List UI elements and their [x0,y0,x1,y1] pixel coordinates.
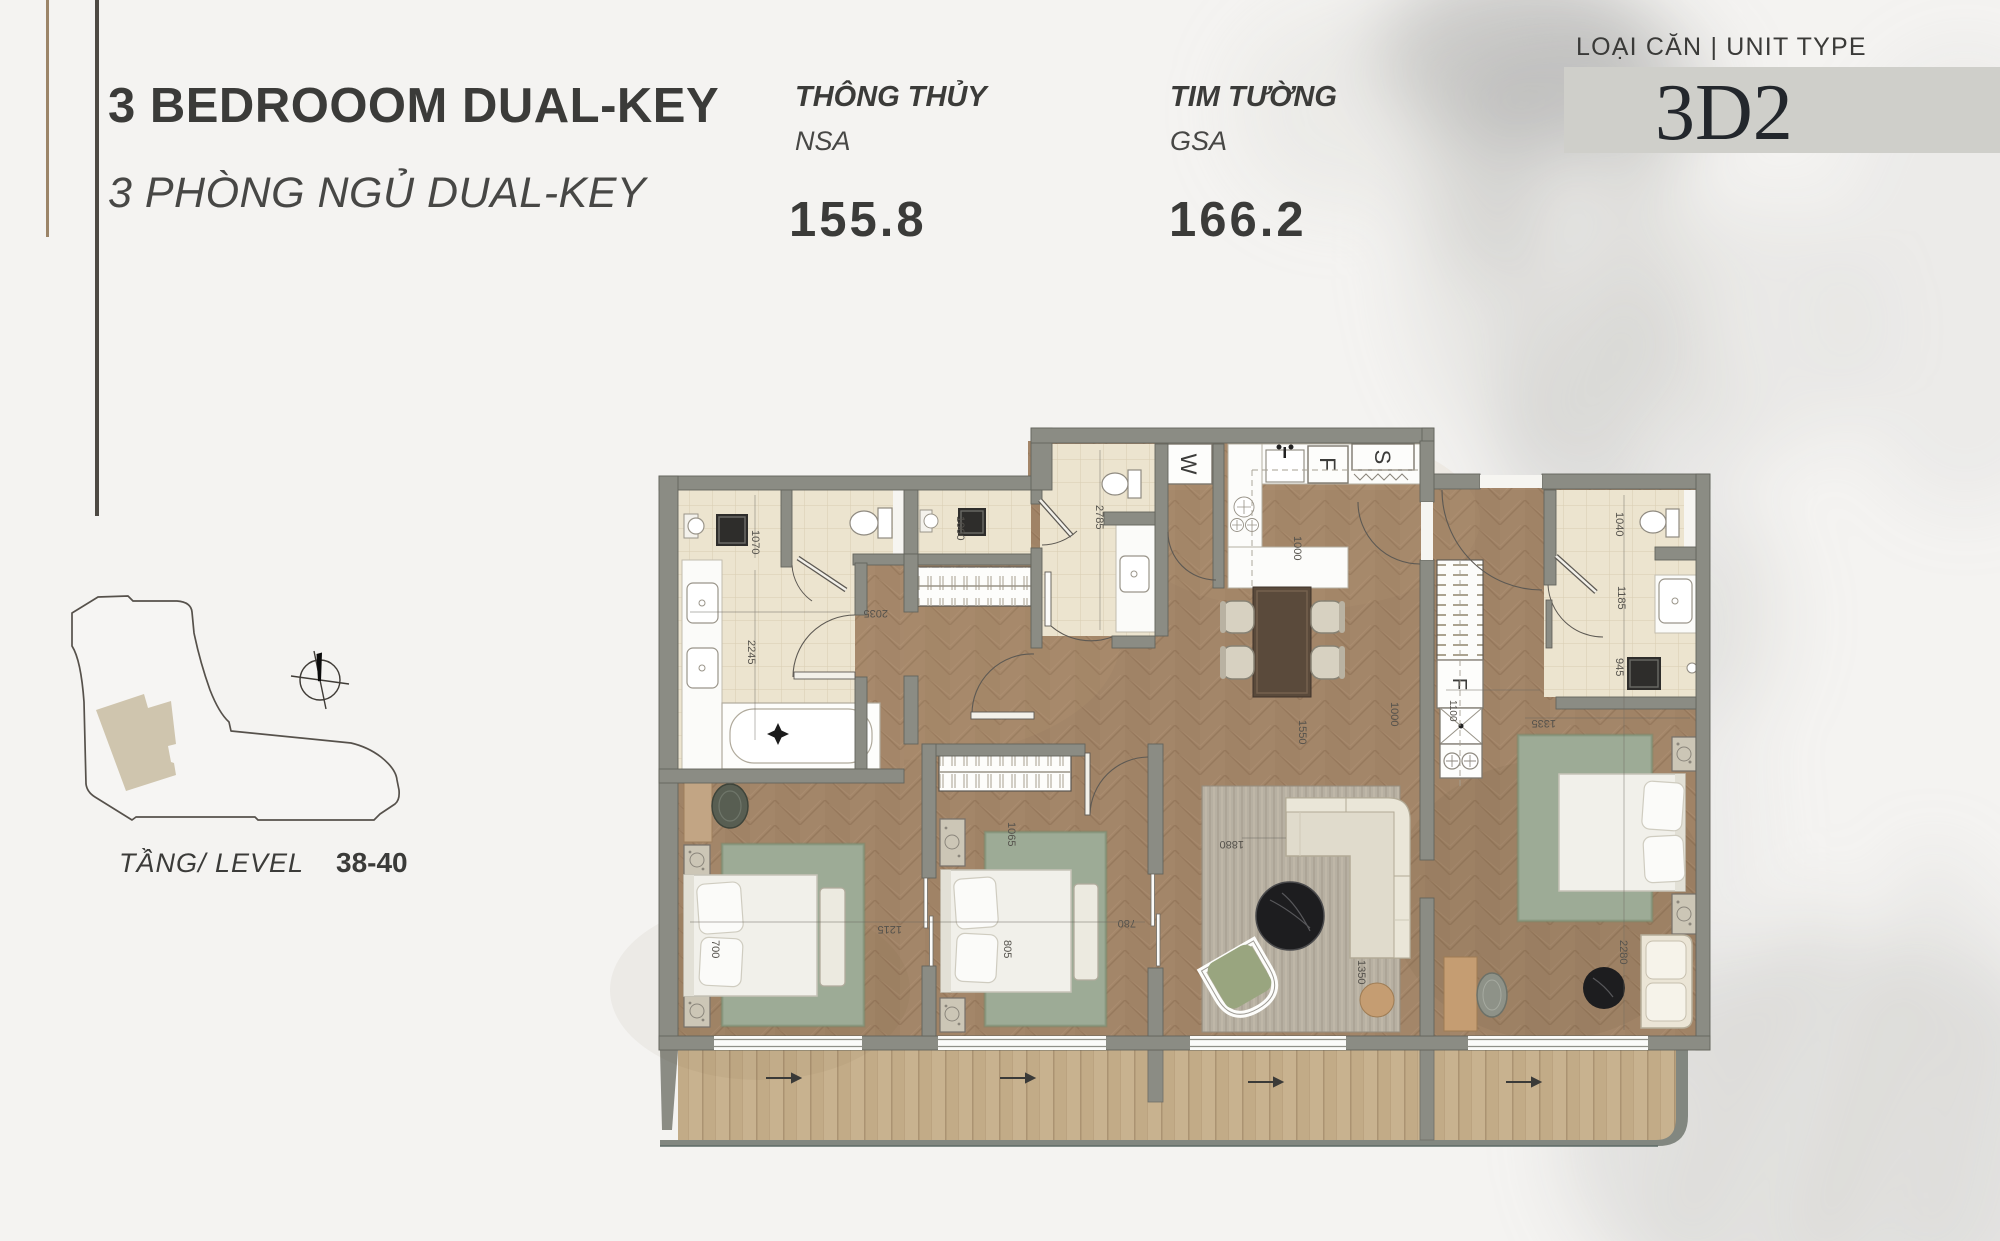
svg-text:THÔNG THỦY: THÔNG THỦY [795,78,989,113]
svg-text:1550: 1550 [1296,720,1308,744]
svg-text:1350: 1350 [1355,960,1367,984]
svg-text:1040: 1040 [1613,512,1625,536]
svg-text:700: 700 [709,940,721,958]
svg-text:1185: 1185 [1615,586,1627,610]
svg-text:GSA: GSA [1170,126,1227,156]
svg-text:155.8: 155.8 [789,193,927,247]
svg-text:3D2: 3D2 [1655,69,1793,157]
svg-text:2035: 2035 [864,607,888,619]
svg-text:1880: 1880 [1220,838,1244,850]
svg-text:945: 945 [1613,658,1625,676]
svg-text:1065: 1065 [1005,822,1017,846]
svg-text:2280: 2280 [1617,940,1629,964]
svg-text:3 PHÒNG NGỦ DUAL-KEY: 3 PHÒNG NGỦ DUAL-KEY [108,167,649,217]
svg-text:2785: 2785 [1093,505,1105,529]
svg-text:TẦNG/ LEVEL: TẦNG/ LEVEL [119,847,304,878]
svg-text:3 BEDROOOM DUAL-KEY: 3 BEDROOOM DUAL-KEY [108,79,719,133]
svg-text:805: 805 [1001,940,1013,958]
svg-text:1100: 1100 [1447,700,1458,722]
svg-text:38-40: 38-40 [336,847,408,878]
svg-text:1215: 1215 [878,923,902,935]
svg-text:166.2: 166.2 [1169,193,1307,247]
svg-text:TIM TƯỜNG: TIM TƯỜNG [1170,79,1337,113]
svg-text:1000: 1000 [954,516,966,540]
svg-text:NSA: NSA [795,126,851,156]
svg-text:LOẠI CĂN | UNIT TYPE: LOẠI CĂN | UNIT TYPE [1576,32,1867,61]
svg-text:1000: 1000 [1291,536,1303,560]
svg-text:W: W [1176,454,1201,475]
svg-text:1335: 1335 [1532,717,1556,729]
svg-text:F: F [1448,678,1470,690]
svg-text:S: S [1370,450,1395,465]
svg-text:F: F [1315,457,1340,470]
svg-text:780: 780 [1118,917,1136,929]
svg-text:1000: 1000 [1388,702,1400,726]
